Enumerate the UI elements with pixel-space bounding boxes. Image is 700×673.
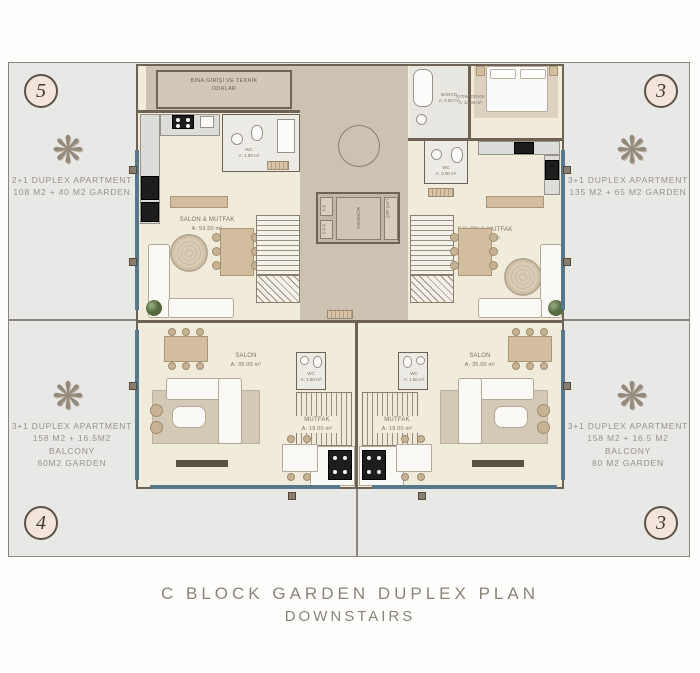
window-wall: [561, 330, 565, 480]
chair-icon: [450, 233, 459, 242]
chair-icon: [287, 473, 295, 481]
chair-icon: [489, 261, 498, 270]
wc-lower-right: WCA: 1.50 m²: [398, 352, 428, 390]
fridge-icon: [141, 176, 159, 200]
plan-title: C BLOCK GARDEN DUPLEX PLAN: [0, 584, 700, 604]
column-post: [563, 166, 571, 174]
tv-console: [472, 460, 524, 467]
washbasin-icon: [431, 149, 442, 160]
toilet-icon: [251, 125, 263, 141]
pillow-icon: [520, 69, 546, 79]
stair-core: ASANSÖR K.Ş Ç.A.Ş ÇÖP ŞAFT: [316, 192, 400, 244]
plant-icon: [146, 300, 162, 316]
round-rug: [170, 234, 208, 272]
chair-icon: [212, 233, 221, 242]
floor-plan-page: BİNA GİRİŞİ VE TEKNİK ODALAR ASANSÖR K.Ş…: [0, 0, 700, 673]
chair-icon: [182, 362, 190, 370]
dining-table: [220, 228, 254, 276]
nightstand-icon: [476, 66, 485, 76]
column-post: [418, 492, 426, 500]
radiator-icon: [428, 188, 454, 197]
garden-label-top-left: 2+1 DUPLEX APARTMENT108 M2 + 40 M2 GARDE…: [10, 174, 134, 199]
chair-icon: [401, 473, 409, 481]
bedroom-label: YATAK ODASIA: 14.00 m²: [440, 94, 500, 106]
toilet-icon: [313, 356, 322, 368]
chair-icon: [168, 362, 176, 370]
chair-icon: [182, 328, 190, 336]
entrance-room: BİNA GİRİŞİ VE TEKNİK ODALAR: [156, 70, 292, 109]
sofa: [218, 378, 242, 444]
stairs-upper-right-turn: [410, 275, 454, 303]
wc-upper-left-label: WCA: 1.80 m²: [227, 147, 271, 159]
chair-icon: [287, 435, 295, 443]
column-post: [129, 166, 137, 174]
garbage-shaft: ÇÖP ŞAFT: [384, 197, 398, 240]
wc-lower-left: WCA: 1.50 m²: [296, 352, 326, 390]
chair-icon: [489, 233, 498, 242]
chair-icon: [196, 362, 204, 370]
chair-icon: [540, 328, 548, 336]
garden-divider-bottom: [356, 488, 358, 557]
wc-upper-right: WCA: 3.00 m²: [424, 140, 468, 184]
stairs-upper-left-turn: [256, 275, 300, 303]
garden-divider-right: [562, 319, 690, 321]
column-post: [563, 382, 571, 390]
oven-icon: [141, 202, 159, 222]
window-wall: [150, 485, 340, 489]
chair-icon: [450, 261, 459, 270]
skylight-circle: [338, 125, 380, 167]
unit-badge-bottom-right: 3: [644, 506, 678, 540]
wall: [138, 320, 562, 323]
chair-icon: [417, 473, 425, 481]
column-post: [129, 258, 137, 266]
washbasin-icon: [416, 114, 427, 125]
window-wall: [372, 485, 557, 489]
kitchen-table: [282, 444, 318, 472]
coffee-table: [494, 406, 528, 428]
armchair-icon: [150, 404, 163, 417]
garden-label-bottom-right: 3+1 DUPLEX APARTMENT158 M2 + 16.5 M2 BAL…: [566, 420, 690, 469]
lower-left-mutfak-label: MUTFAK A: 19.00 m²: [296, 416, 338, 433]
fridge-icon: [545, 160, 559, 180]
dining-table: [508, 336, 552, 362]
lower-right-salon-label: SALON A: 35.00 m²: [452, 352, 508, 369]
sofa: [168, 298, 234, 318]
cooktop-icon: [328, 450, 352, 480]
tv-console: [176, 460, 228, 467]
chair-icon: [196, 328, 204, 336]
garden-label-bottom-left: 3+1 DUPLEX APARTMENT158 M2 + 16.5M2 BALC…: [10, 420, 134, 469]
entrance-room-label: BİNA GİRİŞİ VE TEKNİK ODALAR: [158, 78, 290, 93]
stairs-upper-left: [256, 215, 300, 275]
chair-icon: [303, 435, 311, 443]
washbasin-icon: [231, 133, 243, 145]
chair-icon: [540, 362, 548, 370]
bathtub-icon: [413, 69, 433, 107]
garbage-shaft-label: ÇÖP ŞAFT: [385, 198, 390, 218]
cooktop-icon: [362, 450, 386, 480]
tree-icon: ❋: [52, 378, 84, 416]
unit-badge-top-left: 5: [24, 74, 58, 108]
pillow-icon: [490, 69, 516, 79]
chair-icon: [417, 435, 425, 443]
lower-left-salon-label: SALON A: 35.00 m²: [218, 352, 274, 369]
chair-icon: [512, 362, 520, 370]
washbasin-icon: [416, 356, 425, 365]
wall: [138, 110, 300, 113]
tree-icon: ❋: [616, 132, 648, 170]
cooktop-icon: [514, 142, 534, 154]
chair-icon: [489, 247, 498, 256]
kitchen-island: [486, 196, 544, 208]
wc-upper-left: WCA: 1.80 m²: [222, 114, 300, 172]
garden-label-top-right: 3+1 DUPLEX APARTMENT135 M2 + 65 M2 GARDE…: [566, 174, 690, 199]
shaft-left-top-label: K.Ş: [321, 205, 326, 211]
window-wall: [135, 150, 139, 310]
dining-table: [458, 228, 492, 276]
elevator-label: ASANSÖR: [356, 207, 361, 229]
sink-icon: [200, 116, 214, 128]
chair-icon: [212, 261, 221, 270]
stairs-upper-right: [410, 215, 454, 275]
garden-divider-left: [8, 319, 138, 321]
unit-badge-bottom-left: 4: [24, 506, 58, 540]
radiator-icon: [267, 161, 289, 170]
chair-icon: [303, 473, 311, 481]
chair-icon: [526, 328, 534, 336]
column-post: [129, 382, 137, 390]
lower-right-mutfak-label: MUTFAK A: 19.00 m²: [376, 416, 418, 433]
unit-badge-top-right: 3: [644, 74, 678, 108]
radiator-icon: [327, 310, 353, 319]
wc-upper-right-label: WCA: 3.00 m²: [427, 165, 465, 177]
nightstand-icon: [549, 66, 558, 76]
sofa: [458, 378, 482, 444]
chair-icon: [450, 247, 459, 256]
washbasin-icon: [300, 356, 309, 365]
chair-icon: [526, 362, 534, 370]
wc-lower-left-label: WCA: 1.50 m²: [298, 371, 324, 383]
plan-subtitle: DOWNSTAIRS: [0, 608, 700, 625]
toilet-icon: [451, 147, 463, 163]
wall: [355, 322, 358, 489]
tree-icon: ❋: [616, 378, 648, 416]
chair-icon: [212, 247, 221, 256]
column-post: [288, 492, 296, 500]
shaft-left-bottom: Ç.A.Ş: [320, 220, 333, 239]
column-post: [563, 258, 571, 266]
armchair-icon: [150, 421, 163, 434]
tree-icon: ❋: [52, 132, 84, 170]
shaft-left-bottom-label: Ç.A.Ş: [321, 224, 326, 234]
kitchen-table: [396, 444, 432, 472]
wc-lower-right-label: WCA: 1.50 m²: [401, 371, 427, 383]
coffee-table: [172, 406, 206, 428]
cooktop-icon: [172, 115, 194, 129]
armchair-icon: [537, 421, 550, 434]
window-wall: [561, 150, 565, 310]
chair-icon: [512, 328, 520, 336]
chair-icon: [168, 328, 176, 336]
cabinet-icon: [277, 119, 295, 153]
armchair-icon: [537, 404, 550, 417]
elevator: ASANSÖR: [336, 197, 381, 240]
shaft-left-top: K.Ş: [320, 197, 333, 216]
window-wall: [135, 330, 139, 480]
dining-table: [164, 336, 208, 362]
chair-icon: [401, 435, 409, 443]
round-rug: [504, 258, 542, 296]
toilet-icon: [403, 356, 412, 368]
sofa: [478, 298, 542, 318]
kitchen-island: [170, 196, 228, 208]
